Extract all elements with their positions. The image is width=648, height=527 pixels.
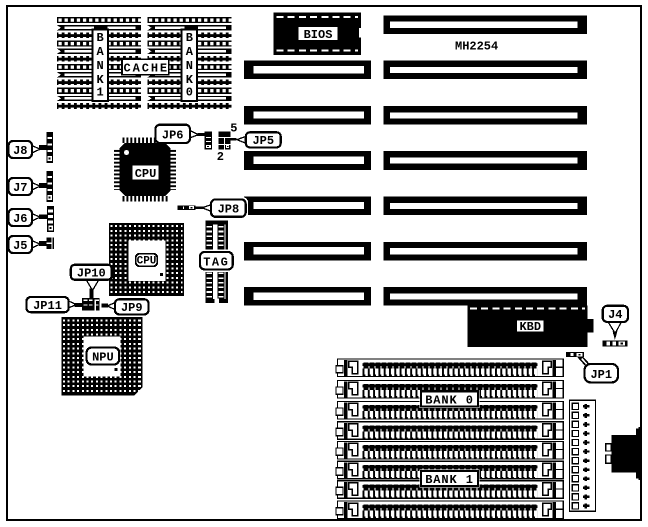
svg-text:A: A — [186, 45, 194, 59]
svg-text:A: A — [96, 45, 104, 59]
svg-text:NPU: NPU — [92, 351, 114, 365]
svg-text:TAG: TAG — [203, 255, 229, 269]
svg-text:1: 1 — [96, 86, 103, 100]
svg-text:BANK 1: BANK 1 — [425, 473, 474, 487]
svg-text:N: N — [186, 59, 193, 73]
svg-text:J8: J8 — [13, 144, 27, 158]
svg-text:B: B — [96, 31, 103, 45]
svg-text:JP10: JP10 — [77, 266, 106, 280]
svg-text:JP5: JP5 — [252, 134, 274, 148]
svg-text:JP9: JP9 — [121, 301, 143, 315]
svg-text:JP1: JP1 — [590, 368, 612, 382]
svg-text:J4: J4 — [608, 308, 622, 322]
svg-text:CPU: CPU — [135, 167, 157, 181]
svg-text:MH2254: MH2254 — [455, 40, 498, 54]
svg-text:5: 5 — [230, 121, 237, 135]
svg-text:JP6: JP6 — [162, 128, 184, 142]
svg-text:KBD: KBD — [519, 320, 541, 334]
svg-text:BIOS: BIOS — [304, 28, 333, 42]
svg-text:BANK 0: BANK 0 — [425, 394, 474, 408]
svg-text:J6: J6 — [13, 212, 27, 226]
svg-text:0: 0 — [186, 86, 193, 100]
svg-text:J5: J5 — [13, 239, 27, 253]
svg-text:JP11: JP11 — [33, 299, 62, 313]
svg-text:JP8: JP8 — [218, 202, 240, 216]
svg-text:2: 2 — [217, 150, 224, 164]
svg-text:B: B — [186, 31, 193, 45]
svg-text:CACHE: CACHE — [124, 61, 170, 75]
svg-text:N: N — [96, 59, 103, 73]
svg-text:J7: J7 — [13, 181, 27, 195]
svg-text:CPU: CPU — [137, 256, 157, 268]
